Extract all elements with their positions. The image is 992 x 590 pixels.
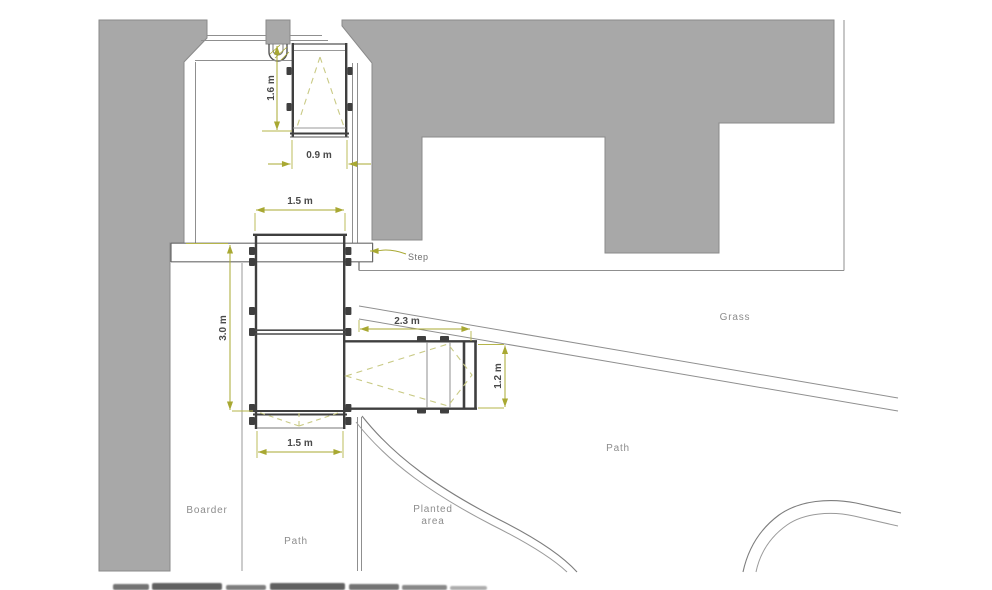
dimension-label-3-0m: 3.0 m [218,315,229,341]
border-label: Boarder [186,505,227,516]
dimension-label-1-6m: 1.6 m [266,75,277,101]
dimension-label-2-3m: 2.3 m [394,316,420,327]
dimension-label-1-5m-bottom: 1.5 m [287,438,313,449]
door-pillar [266,20,290,44]
dimension-label-1-5m-top: 1.5 m [287,196,313,207]
step-label: Step [408,252,429,262]
planted-area-label-line1: Planted [413,504,453,515]
landscape-plan-page: 1.6 m 0.9 m 1.5 m 3.0 m 2.3 m 1.2 m [0,0,992,590]
planted-area-label-line2: area [421,516,444,527]
path-lower-label: Path [284,536,308,547]
dimension-label-0-9m: 0.9 m [306,150,332,161]
path-upper-label: Path [606,443,630,454]
dimension-label-1-2m: 1.2 m [493,363,504,389]
landscape-plan-svg: 1.6 m 0.9 m 1.5 m 3.0 m 2.3 m 1.2 m [0,0,992,590]
grass-label: Grass [720,312,751,323]
